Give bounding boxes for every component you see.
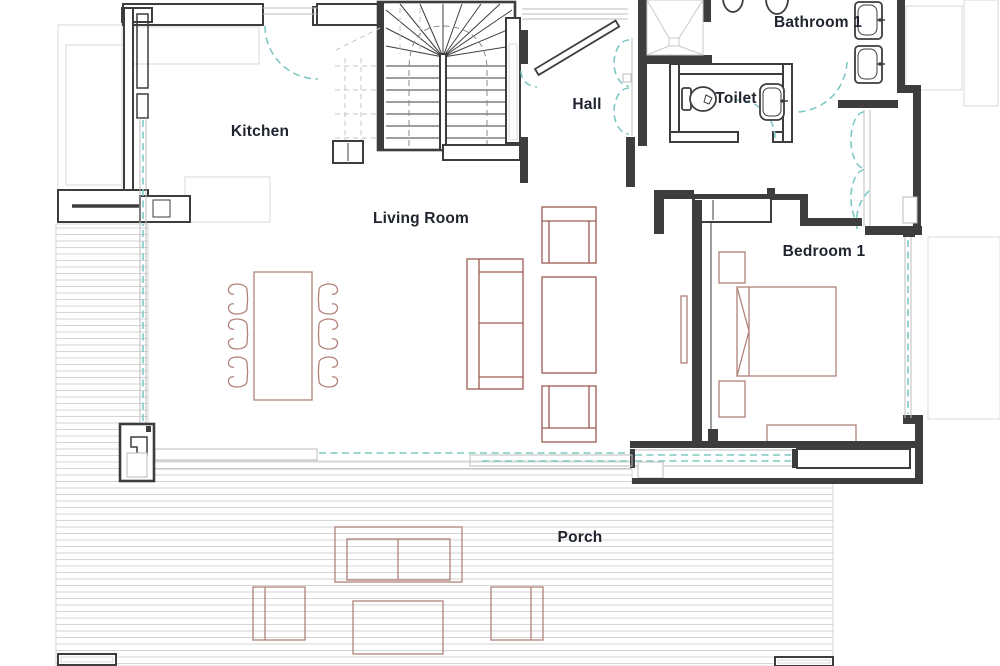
floor-plan-stage: Kitchen Hall Bathroom 1 Toilet Living Ro… — [0, 0, 1000, 666]
armchair — [542, 207, 596, 263]
room-label-kitchen: Kitchen — [231, 123, 289, 140]
room-label-porch: Porch — [558, 529, 603, 546]
staircase — [333, 2, 520, 163]
fireplace — [120, 424, 154, 481]
hall-closet-doors — [614, 40, 629, 134]
bedroom-corridor — [851, 110, 922, 235]
shower-drain — [669, 38, 679, 46]
bedroom-window-south — [630, 449, 797, 478]
room-label-bathroom1: Bathroom 1 — [774, 14, 862, 31]
deck-steps — [775, 657, 833, 666]
dining-chair — [318, 357, 337, 387]
dining-chair — [318, 319, 337, 349]
dining-chair — [228, 319, 247, 349]
armchair — [542, 386, 596, 442]
living-room — [120, 207, 687, 481]
toilet-fixture — [682, 87, 716, 111]
dining-chair — [228, 357, 247, 387]
hall — [520, 9, 694, 234]
bidet-fixture — [766, 0, 788, 14]
coffee-table — [542, 277, 596, 373]
dining-chair — [318, 284, 337, 314]
toilet-fixture — [723, 0, 743, 12]
stair-hall-pillar — [506, 18, 520, 143]
double-bed — [719, 252, 836, 417]
sofa-set — [467, 207, 596, 442]
entrance-door-swing — [521, 71, 537, 87]
kitchen-walls — [58, 4, 378, 222]
room-label-toilet: Toilet — [715, 90, 756, 107]
kitchen-counter — [185, 177, 270, 222]
floor-plan-svg: Kitchen Hall Bathroom 1 Toilet Living Ro… — [0, 0, 1000, 666]
room-label-bedroom1: Bedroom 1 — [783, 243, 866, 260]
stair-newel — [440, 54, 446, 150]
deck-steps — [58, 654, 116, 665]
dining-set — [228, 272, 337, 400]
bedroom-window-east — [903, 228, 915, 418]
entrance-door — [535, 21, 619, 75]
closet-doors — [851, 112, 864, 226]
washbasin — [760, 84, 788, 120]
sofa — [467, 259, 523, 389]
kitchen-counter — [133, 27, 259, 64]
room-label-hall: Hall — [572, 96, 601, 113]
room-label-living-room: Living Room — [373, 210, 469, 227]
kitchen-door — [263, 8, 318, 79]
nightstand — [719, 252, 745, 283]
tv — [681, 296, 687, 363]
wardrobe — [694, 198, 771, 222]
nightstand — [719, 381, 745, 417]
dining-chair — [228, 284, 247, 314]
dining-table — [254, 272, 312, 400]
